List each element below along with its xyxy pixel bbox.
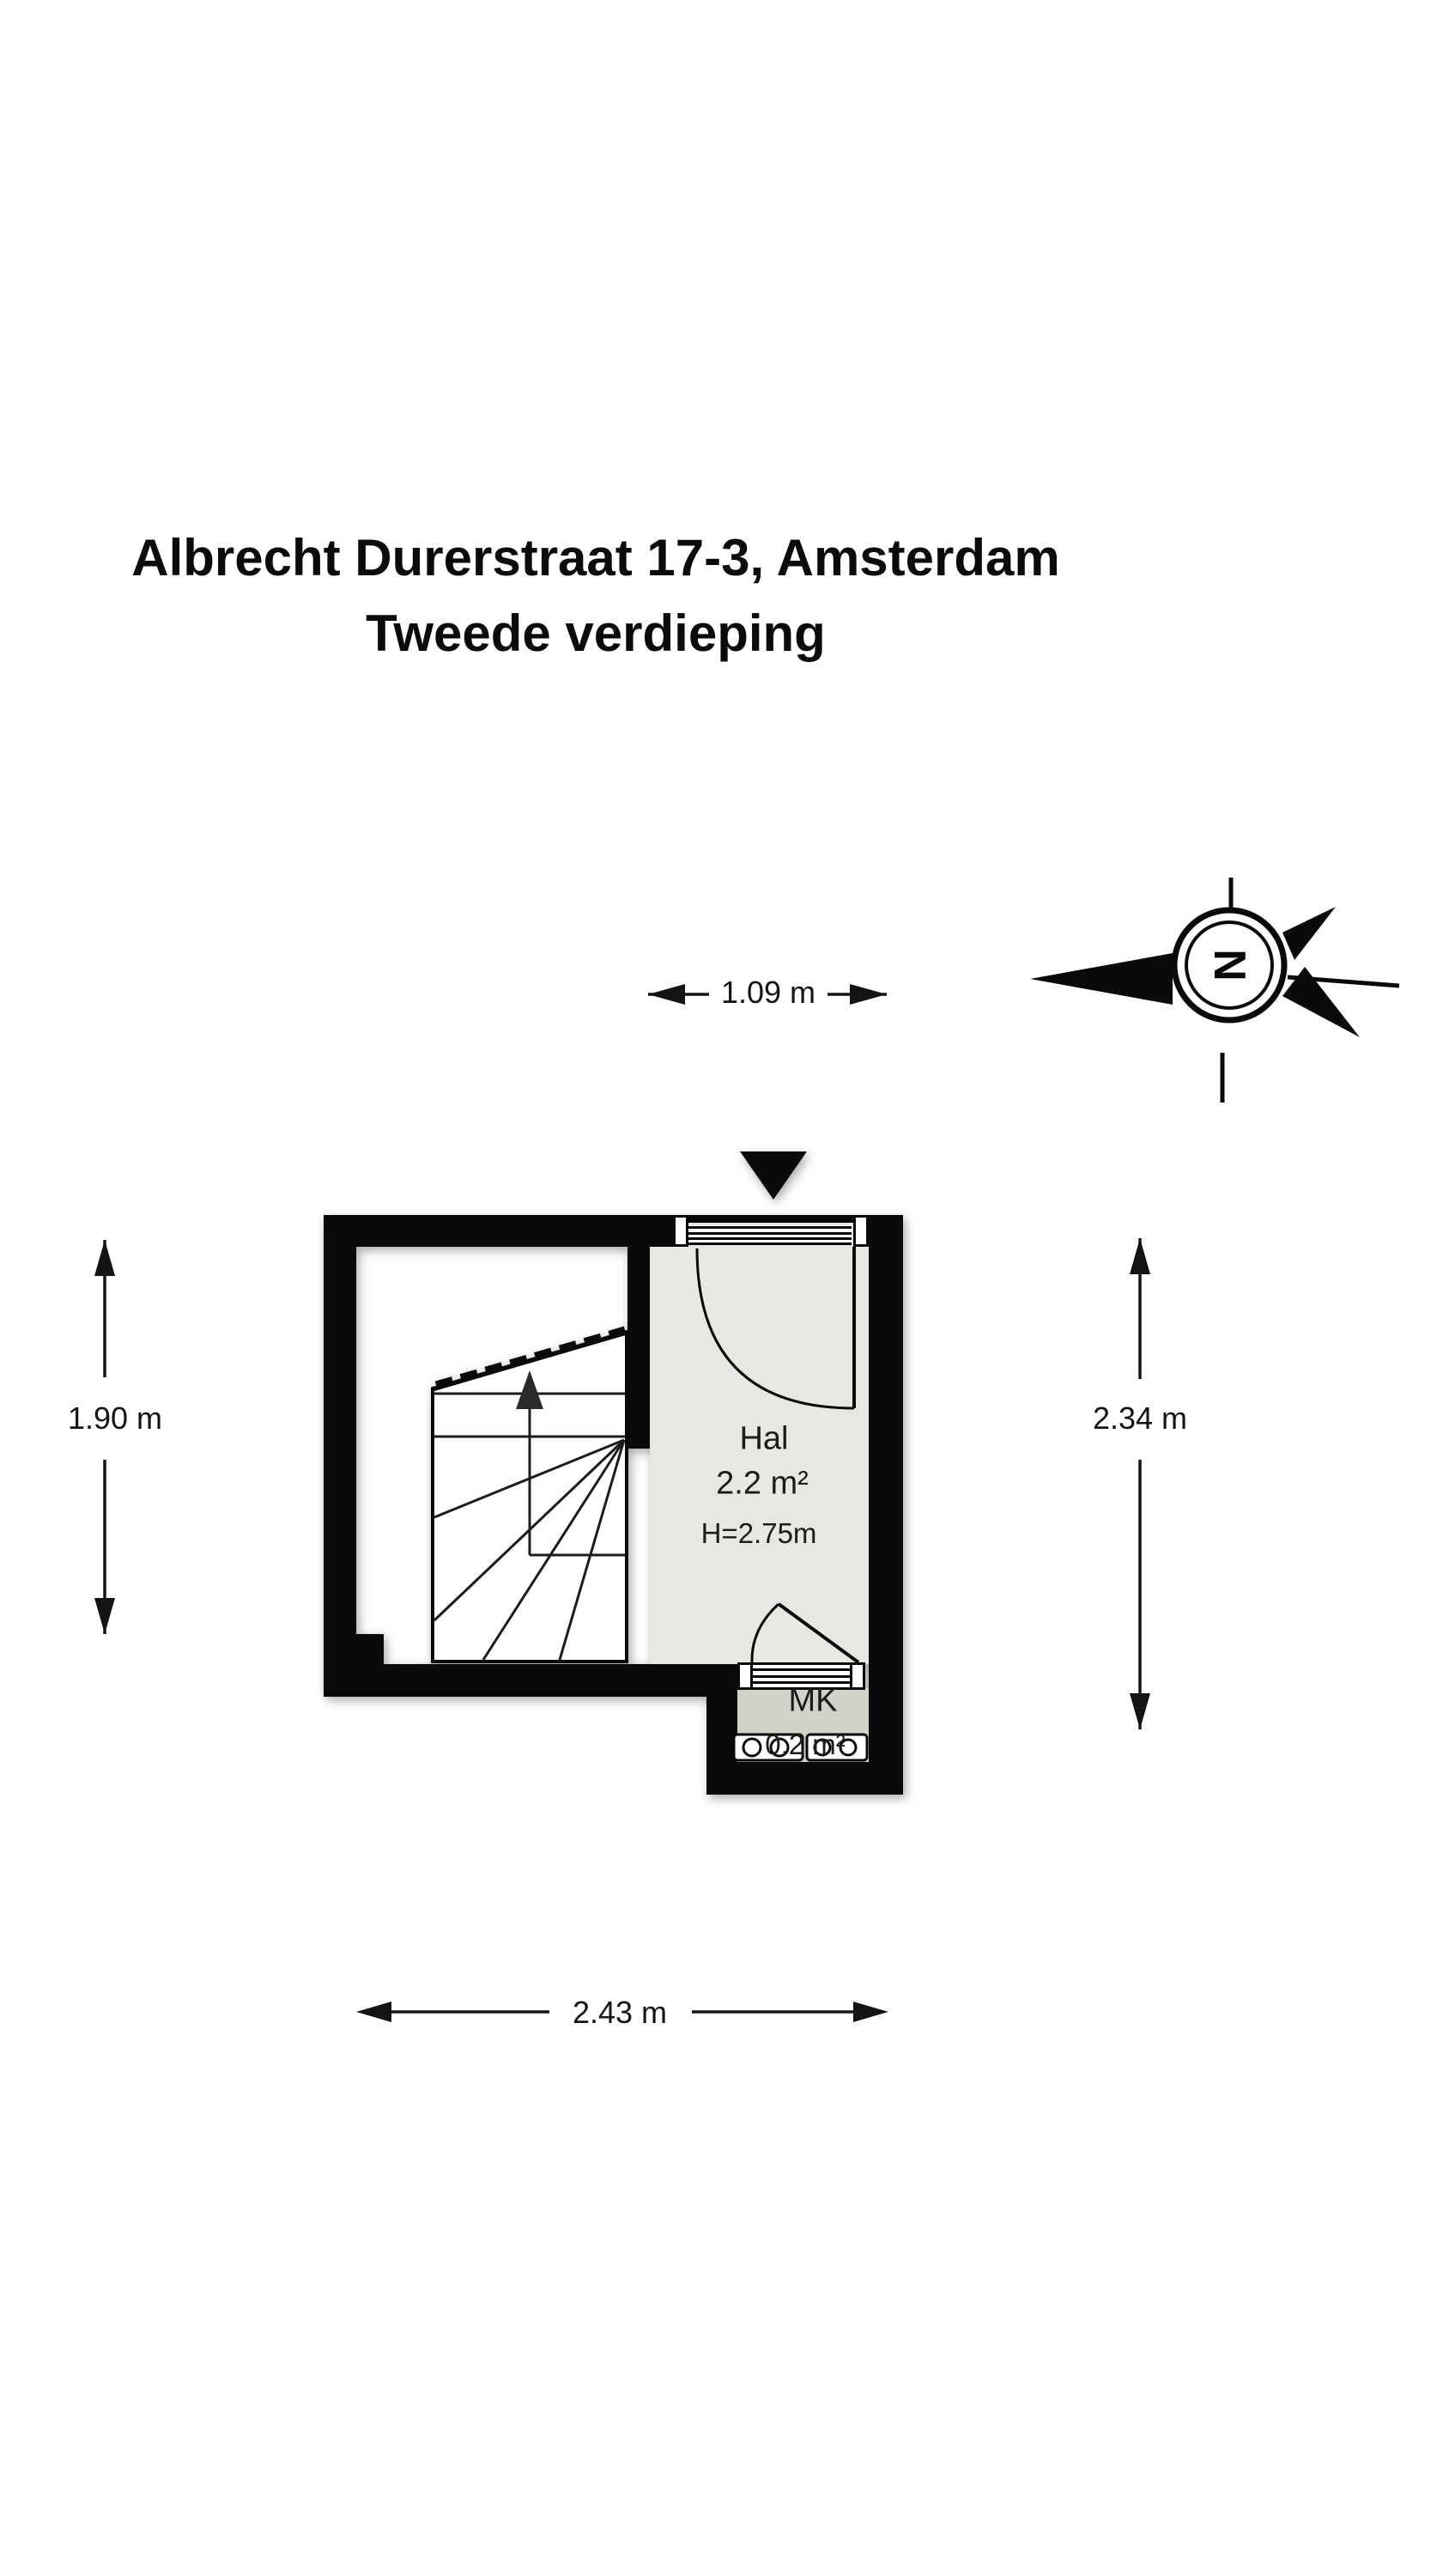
compass-north-pointer-icon [1030, 953, 1173, 1005]
compass-star-upper-icon [1282, 907, 1336, 960]
mk-room-area: 0.2 m² [765, 1728, 846, 1761]
compass: N [0, 0, 1449, 2576]
compass-north-letter: N [1204, 949, 1254, 981]
